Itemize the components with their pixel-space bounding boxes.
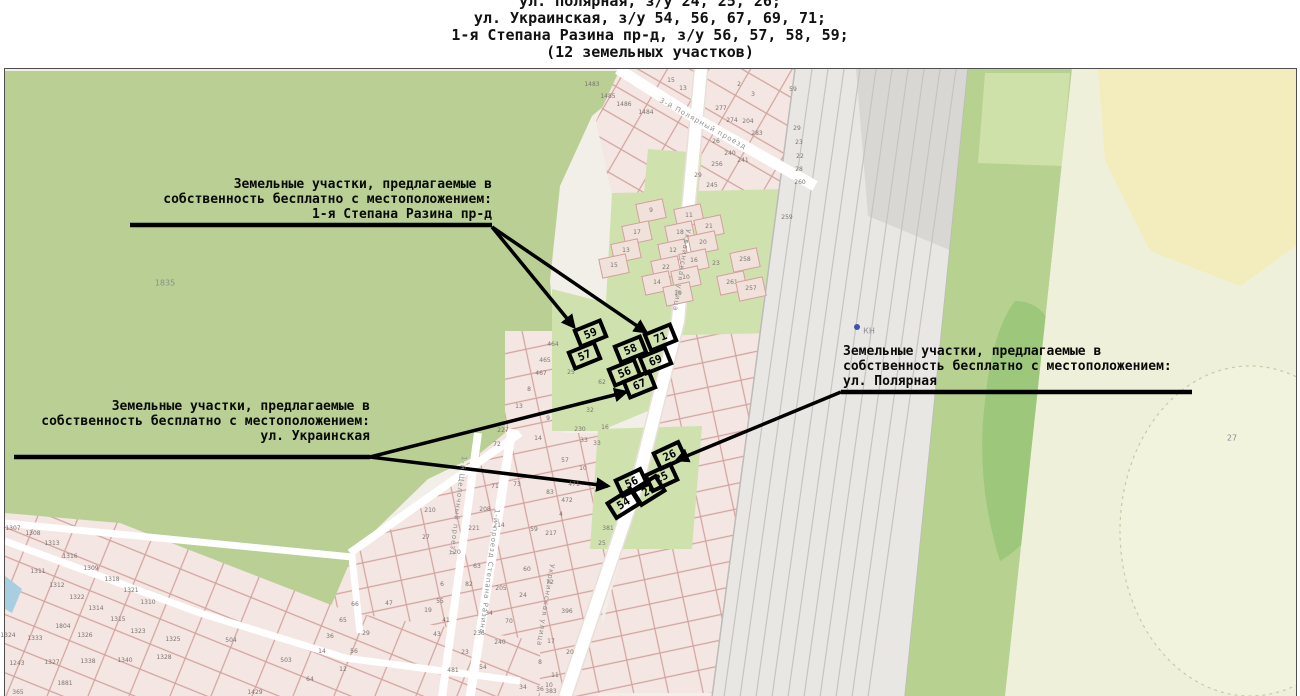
title-line-2: ул. Украинская, з/у 54, 56, 67, 69, 71; xyxy=(0,10,1300,27)
annotation-stepana-razina: Земельные участки, предлагаемые в собств… xyxy=(122,177,492,222)
title-line-3: 1-я Степана Разина пр-д, з/у 56, 57, 58,… xyxy=(0,27,1300,44)
title-line-4: (12 земельных участков) xyxy=(0,44,1300,61)
annotation-polyarnaya: Земельные участки, предлагаемые в собств… xyxy=(843,344,1203,389)
map-title: ул. Полярная, з/у 24, 25, 26; ул. Украин… xyxy=(0,0,1300,61)
title-block: ул. Полярная, з/у 24, 25, 26; ул. Украин… xyxy=(0,0,1300,64)
annotation-line: собственность бесплатно с местоположение… xyxy=(843,359,1203,374)
annotation-line: ул. Украинская xyxy=(10,429,370,444)
annotation-ukrainskaya: Земельные участки, предлагаемые в собств… xyxy=(10,399,370,444)
annotation-line: ул. Полярная xyxy=(843,374,1203,389)
annotation-line: 1-я Степана Разина пр-д xyxy=(122,207,492,222)
cadastral-map-page: ул. Полярная, з/у 24, 25, 26; ул. Украин… xyxy=(0,0,1300,696)
annotation-line: Земельные участки, предлагаемые в xyxy=(10,399,370,414)
annotation-line: Земельные участки, предлагаемые в xyxy=(843,344,1203,359)
annotation-line: Земельные участки, предлагаемые в xyxy=(122,177,492,192)
annotation-line: собственность бесплатно с местоположение… xyxy=(122,192,492,207)
annotation-line: собственность бесплатно с местоположение… xyxy=(10,414,370,429)
